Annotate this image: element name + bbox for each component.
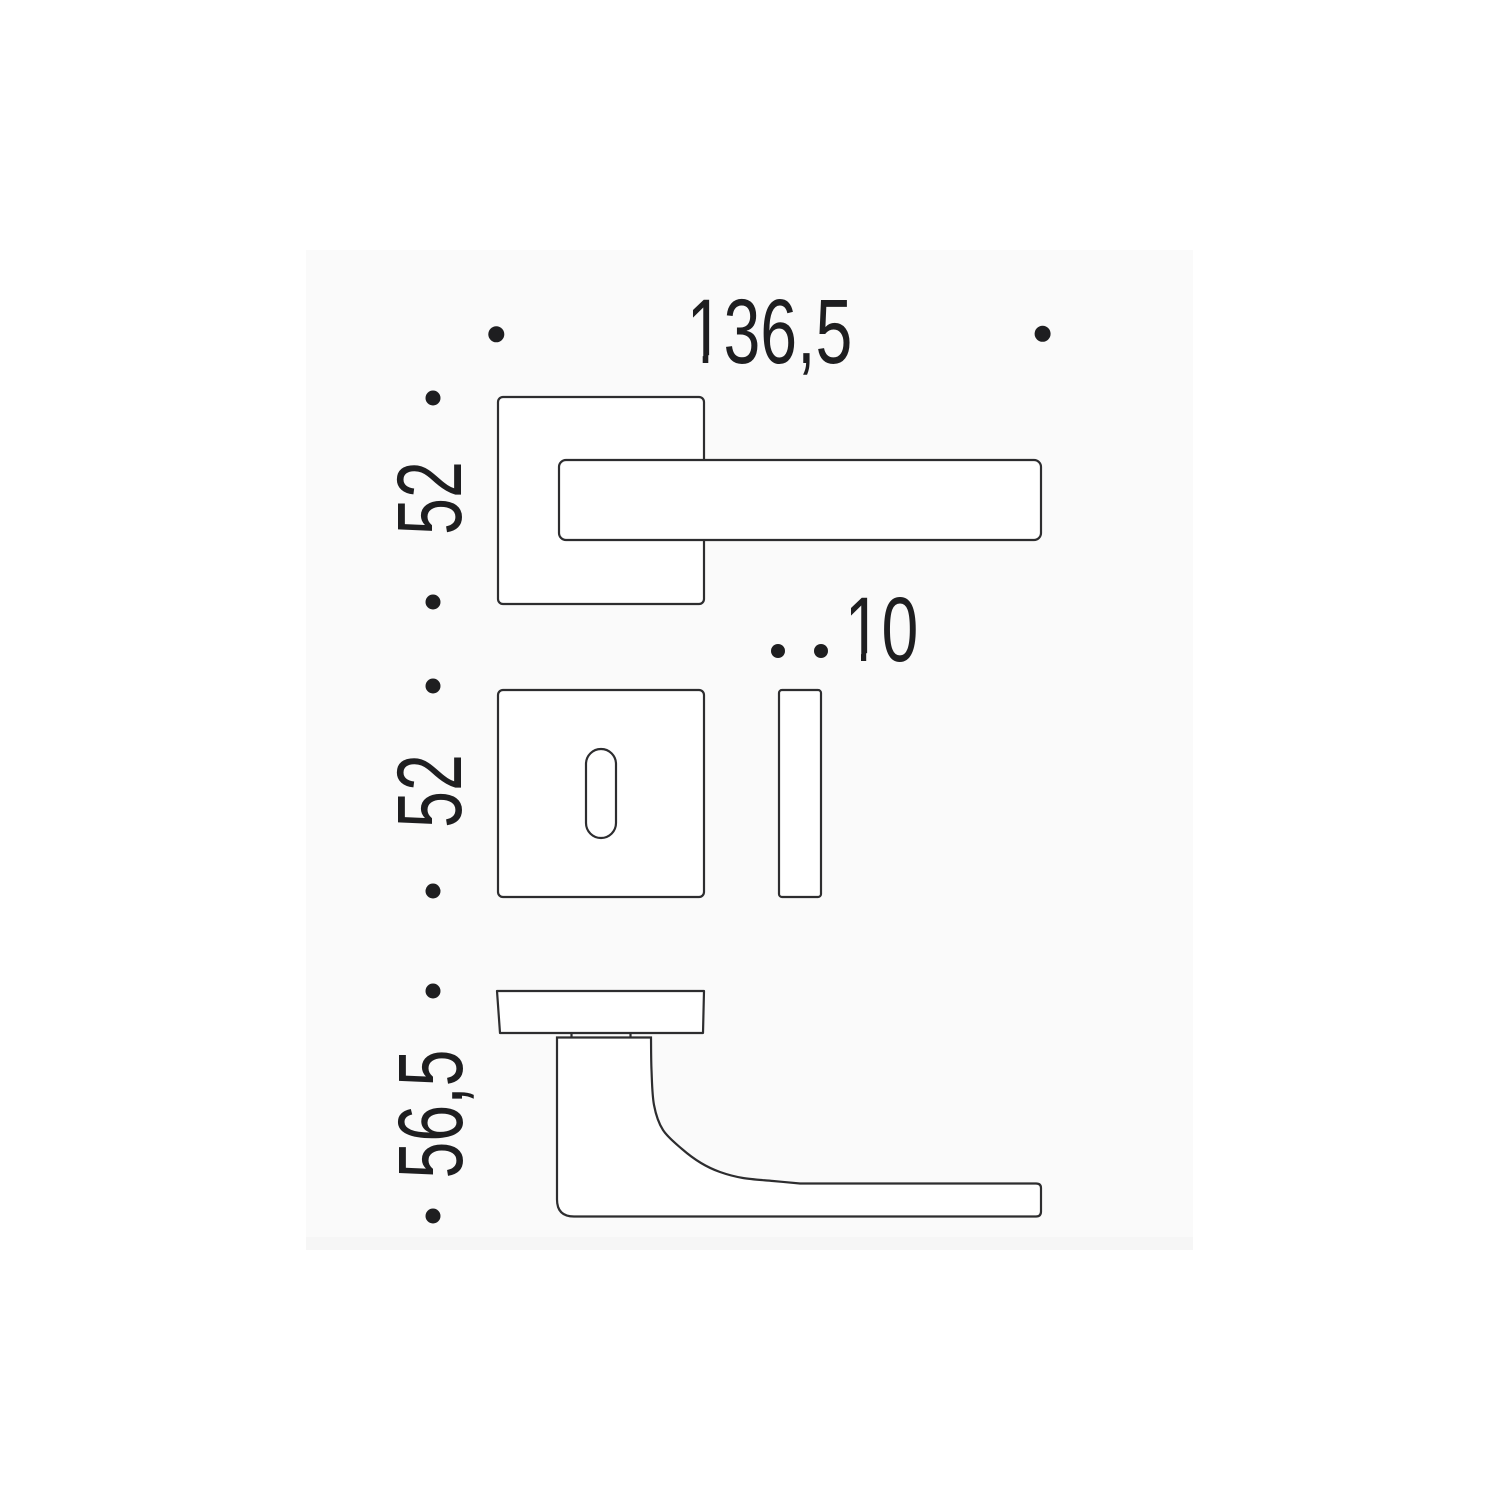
- svg-text:52: 52: [377, 754, 480, 828]
- svg-text:10: 10: [845, 577, 919, 680]
- svg-text:56,5: 56,5: [378, 1050, 481, 1179]
- svg-text:52: 52: [377, 461, 480, 535]
- svg-text:136,5: 136,5: [687, 279, 853, 382]
